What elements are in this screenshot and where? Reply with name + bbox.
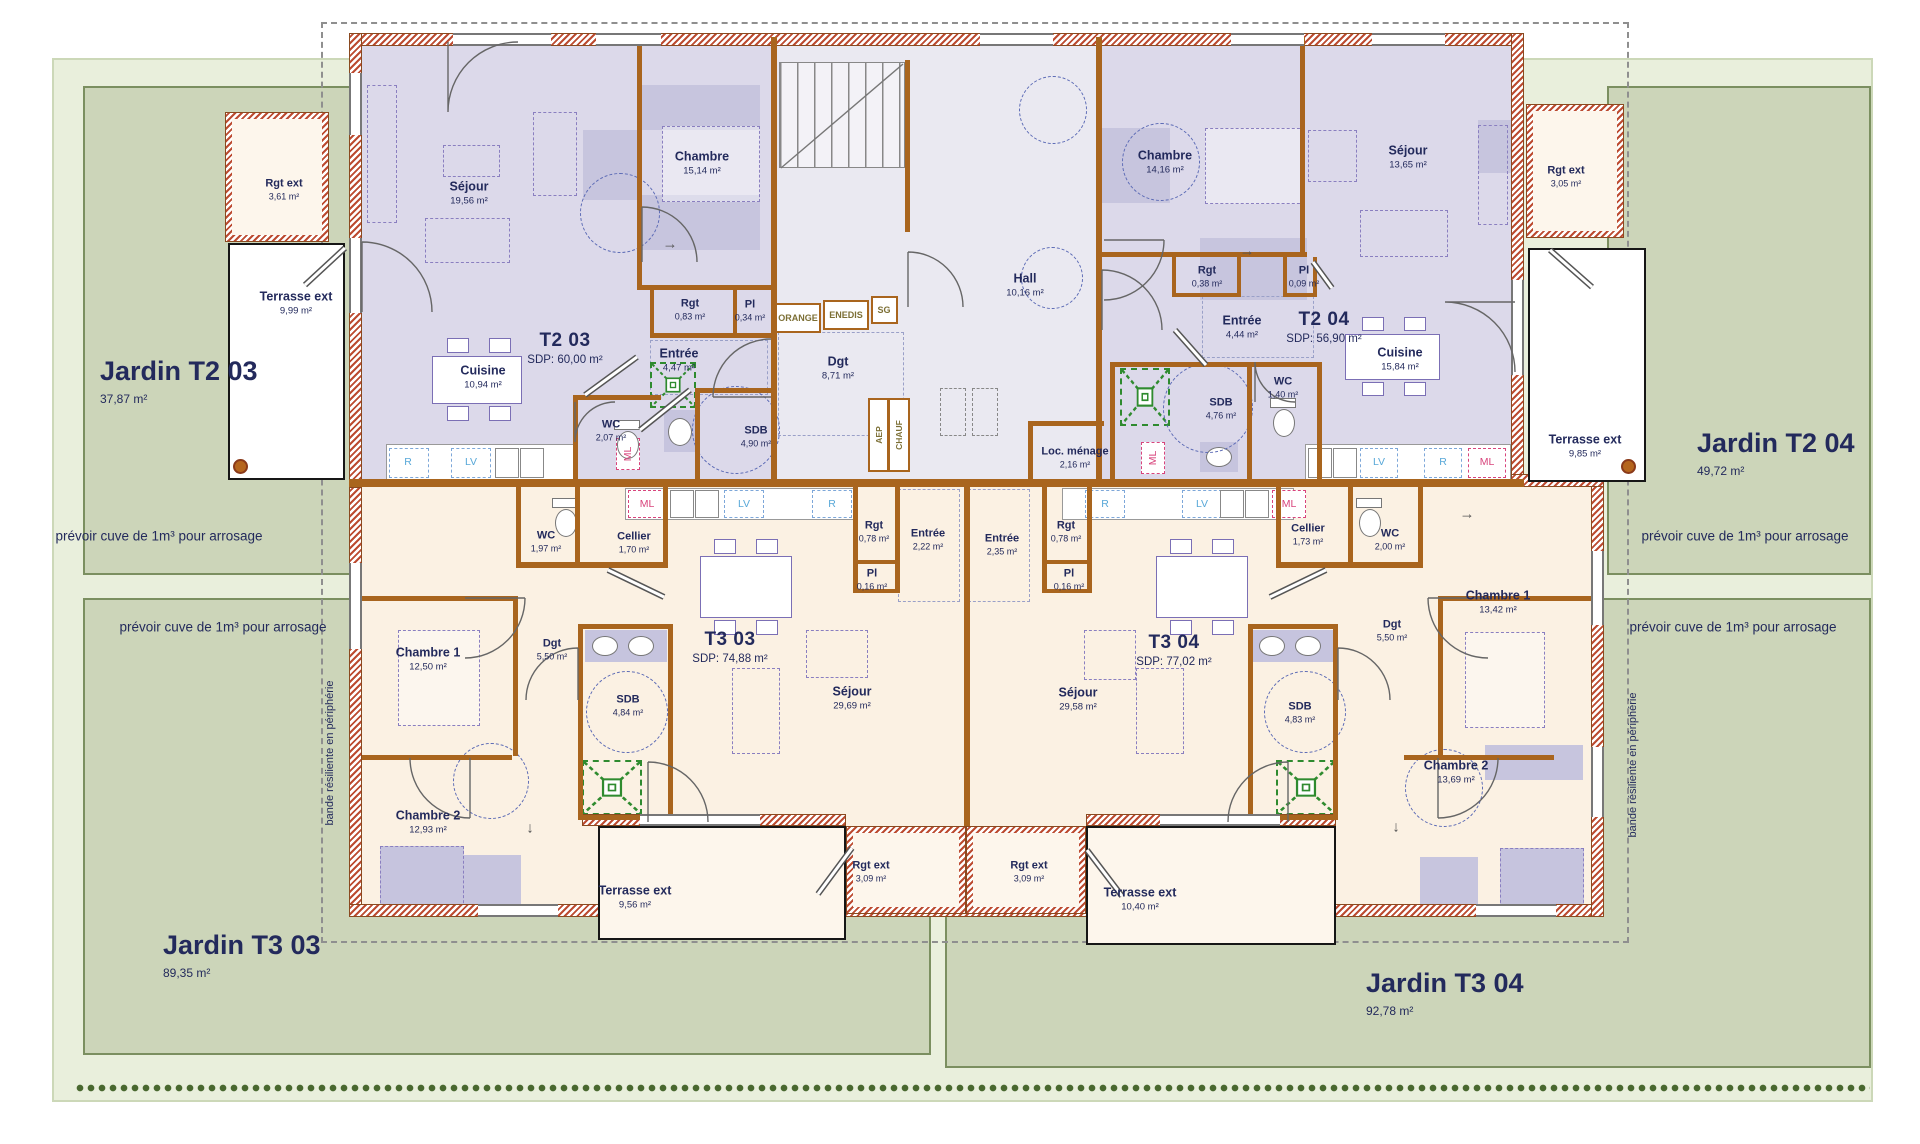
sofa — [1360, 210, 1448, 257]
label-t2-04-entree: Entrée4,44 m² — [1223, 313, 1262, 341]
chair — [1170, 539, 1192, 554]
label-closet-aep: AEP — [874, 426, 884, 443]
wall — [573, 395, 661, 400]
label-t2-04-pl: Pl0,09 m² — [1289, 265, 1320, 290]
label-t3-04-pl: Pl0,16 m² — [1054, 568, 1085, 593]
chair — [1212, 539, 1234, 554]
label-t3-04-cellier: Cellier1,73 m² — [1291, 523, 1325, 548]
label-t3-03-chambre2: Chambre 212,93 m² — [396, 808, 461, 836]
wall — [650, 290, 654, 338]
washbasin-bowl — [668, 418, 692, 446]
window — [349, 73, 362, 135]
window — [1591, 747, 1604, 817]
arrow-right-icon: → — [1460, 506, 1475, 523]
wall — [573, 395, 578, 484]
label-t3-03-sejour: Séjour29,69 m² — [833, 684, 872, 712]
floor-plan: Séjour19,56 m² Chambre15,14 m² Rgt0,83 m… — [0, 0, 1920, 1144]
window — [596, 33, 661, 46]
note-cuve-1: prévoir cuve de 1m³ pour arrosage — [55, 529, 262, 544]
window — [453, 33, 551, 46]
chair — [489, 338, 511, 353]
note-bande-right: bande résiliente en périphérie — [1627, 693, 1639, 838]
label-closet-sg: SG — [877, 305, 890, 315]
bed-t3-03-ch2 — [380, 846, 464, 908]
sofa — [1136, 668, 1184, 754]
label-t2-04-rgt: Rgt0,38 m² — [1192, 265, 1223, 290]
label-garden-t2-04: Jardin T2 0449,72 m² — [1697, 428, 1855, 478]
wall — [362, 596, 518, 601]
label-ml: ML — [1147, 451, 1159, 466]
note-bande-left: bande résiliente en périphérie — [324, 681, 336, 826]
armchair — [533, 112, 577, 196]
wall — [578, 624, 673, 629]
washbasin-bowl — [628, 636, 654, 656]
floor-patch — [640, 85, 760, 130]
label-terrasse-tl: Terrasse ext9,99 m² — [260, 289, 333, 317]
label-t2-03-chambre: Chambre15,14 m² — [675, 149, 729, 177]
shaft-circle — [1019, 76, 1087, 144]
label-ml: ML — [640, 498, 655, 510]
coffee-table — [443, 145, 500, 177]
window — [1372, 33, 1445, 46]
wall — [1087, 487, 1092, 591]
title-t2-03: T2 03SDP: 60,00 m² — [527, 330, 602, 366]
wall — [887, 398, 890, 472]
exterior-wall — [1591, 474, 1604, 917]
arrow-down-icon: ↓ — [1392, 819, 1400, 836]
duct-shaft — [940, 388, 966, 436]
wall — [1110, 362, 1322, 367]
wall — [575, 487, 580, 567]
window — [478, 904, 558, 917]
wall — [1172, 257, 1176, 297]
label-ml: ML — [1480, 456, 1495, 468]
chair — [714, 539, 736, 554]
label-hall: Hall10,16 m² — [1006, 271, 1044, 299]
wall — [1028, 421, 1104, 426]
floor-patch — [463, 855, 521, 910]
label-t2-03-sdb: SDB4,90 m² — [741, 425, 772, 450]
label-t3-04-sdb: SDB4,83 m² — [1285, 701, 1316, 726]
label-t2-04-sdb: SDB4,76 m² — [1206, 397, 1237, 422]
label-garden-t3-03: Jardin T3 0389,35 m² — [163, 930, 321, 980]
sliding-door — [1160, 814, 1280, 826]
wall — [1172, 293, 1241, 297]
washbasin-bowl — [592, 636, 618, 656]
wall — [1276, 487, 1281, 567]
wall — [650, 333, 774, 338]
sink — [1333, 448, 1357, 478]
chair — [489, 406, 511, 421]
sofa — [732, 668, 780, 754]
label-t2-04-wc: WC1,40 m² — [1268, 376, 1299, 401]
label-t2-03-pl: Pl0,34 m² — [735, 299, 766, 324]
wall — [1237, 257, 1241, 297]
garden-t2-04 — [1607, 86, 1871, 575]
label-t3-03-wc: WC1,97 m² — [531, 530, 562, 555]
chair — [1404, 317, 1426, 331]
label-t3-03-pl: Pl0,16 m² — [857, 568, 888, 593]
label-t2-04-chambre: Chambre14,16 m² — [1138, 148, 1192, 176]
label-lv: LV — [1196, 498, 1208, 510]
toilet — [1356, 498, 1382, 508]
note-cuve-4: prévoir cuve de 1m³ pour arrosage — [1629, 620, 1836, 635]
wall — [1418, 487, 1423, 567]
arrow-down-icon: ↓ — [526, 820, 534, 837]
label-ml: ML — [1282, 498, 1297, 510]
sink — [1245, 490, 1269, 518]
label-t2-03-entree: Entrée4,47 m² — [660, 346, 699, 374]
title-t3-04: T3 04SDP: 77,02 m² — [1136, 632, 1211, 668]
dining-table — [1156, 556, 1248, 618]
label-r: R — [1439, 456, 1447, 468]
window — [1231, 33, 1304, 46]
wall — [1248, 624, 1253, 820]
wall — [695, 388, 700, 484]
exterior-wall — [349, 487, 362, 917]
wall — [516, 487, 521, 567]
wall — [637, 37, 642, 290]
wall — [853, 560, 900, 564]
tv-unit — [1478, 125, 1508, 225]
wall — [513, 596, 518, 756]
label-lv: LV — [465, 456, 477, 468]
label-rgt-ext-tl: Rgt ext3,61 m² — [265, 178, 302, 203]
label-t3-03-rgt: Rgt0,78 m² — [859, 520, 890, 545]
label-closet-chauf: CHAUF — [894, 420, 904, 450]
wall — [362, 755, 512, 760]
note-cuve-3: prévoir cuve de 1m³ pour arrosage — [1641, 529, 1848, 544]
arrow-right-icon: → — [663, 236, 678, 253]
label-t2-03-sejour: Séjour19,56 m² — [450, 179, 489, 207]
wall — [637, 285, 774, 290]
label-closet-enedis: ENEDIS — [829, 310, 863, 320]
chair — [1362, 317, 1384, 331]
label-rgt-ext-bl: Rgt ext3,09 m² — [852, 860, 889, 885]
wall — [663, 487, 668, 567]
wall — [1300, 37, 1305, 257]
window — [1476, 904, 1556, 917]
label-t3-04-chambre1: Chambre 113,42 m² — [1466, 588, 1531, 616]
wall — [1283, 257, 1287, 297]
floor-patch — [1420, 857, 1478, 910]
label-terrasse-bl: Terrasse ext9,56 m² — [599, 883, 672, 911]
turning-circle — [580, 173, 660, 253]
wardrobe — [367, 85, 397, 223]
label-t3-03-dgt: Dgt5,50 m² — [537, 638, 568, 663]
label-t3-04-chambre2: Chambre 213,69 m² — [1424, 758, 1489, 786]
wall — [1317, 362, 1322, 484]
label-r: R — [404, 456, 412, 468]
label-common-dgt: Dgt8,71 m² — [822, 354, 854, 382]
label-t2-03-rgt: Rgt0,83 m² — [675, 298, 706, 323]
chair — [756, 539, 778, 554]
arrow-right-icon: → — [1240, 243, 1255, 260]
label-rgt-ext-br: Rgt ext3,09 m² — [1010, 860, 1047, 885]
label-r: R — [828, 498, 836, 510]
label-t2-03-wc: WC2,07 m² — [596, 419, 627, 444]
title-t3-03: T3 03SDP: 74,88 m² — [692, 629, 767, 665]
bed-t2-04 — [1205, 128, 1305, 204]
dining-table — [700, 556, 792, 618]
sink — [495, 448, 519, 478]
wall — [1276, 562, 1423, 568]
staircase — [779, 62, 905, 168]
label-t3-04-sejour: Séjour29,58 m² — [1059, 685, 1098, 713]
title-t2-04: T2 04SDP: 56,90 m² — [1286, 309, 1361, 345]
chair — [1212, 620, 1234, 635]
armchair — [1308, 130, 1357, 182]
wall — [1102, 252, 1307, 257]
shower — [1120, 368, 1170, 426]
wall — [1333, 624, 1338, 820]
rainwater-dot — [233, 459, 248, 474]
hedge-row — [75, 1083, 1870, 1094]
wall — [578, 624, 583, 820]
label-t3-04-rgt: Rgt0,78 m² — [1051, 520, 1082, 545]
label-t3-04-dgt: Dgt5,50 m² — [1377, 619, 1408, 644]
chair — [447, 406, 469, 421]
label-t3-03-entree: Entrée2,22 m² — [911, 528, 945, 553]
duct-shaft — [972, 388, 998, 436]
chair — [1404, 382, 1426, 396]
label-ml: ML — [622, 447, 634, 462]
wall — [1042, 560, 1092, 564]
window — [980, 33, 1053, 46]
shower — [582, 760, 642, 815]
label-lv: LV — [738, 498, 750, 510]
bed-t3-04-ch2 — [1500, 848, 1584, 908]
label-loc-menage: Loc. ménage2,16 m² — [1041, 446, 1108, 471]
label-closet-orange: ORANGE — [778, 313, 818, 323]
wall — [1247, 362, 1252, 484]
label-t2-04-sejour: Séjour13,65 m² — [1389, 143, 1428, 171]
sink — [670, 490, 694, 518]
rainwater-dot — [1621, 459, 1636, 474]
label-t2-03-cuisine: Cuisine10,94 m² — [460, 363, 505, 391]
label-t3-04-wc: WC2,00 m² — [1375, 528, 1406, 553]
exterior-wall — [1511, 33, 1524, 487]
label-r: R — [1101, 498, 1109, 510]
door-opening — [1511, 280, 1524, 375]
wall — [1096, 37, 1102, 484]
wall — [771, 37, 777, 484]
sink — [1220, 490, 1244, 518]
label-t3-03-chambre1: Chambre 112,50 m² — [396, 645, 461, 673]
sliding-door — [640, 814, 760, 826]
bed-t3-04-ch1 — [1465, 632, 1545, 728]
sofa — [425, 218, 510, 263]
wall — [349, 479, 1524, 487]
label-t3-04-entree: Entrée2,35 m² — [985, 533, 1019, 558]
toilet-bowl — [1273, 409, 1295, 437]
armchair — [806, 630, 868, 678]
wall — [1283, 293, 1317, 297]
label-rgt-ext-tr: Rgt ext3,05 m² — [1547, 165, 1584, 190]
note-cuve-2: prévoir cuve de 1m³ pour arrosage — [119, 620, 326, 635]
wall — [1028, 421, 1033, 487]
wall — [695, 388, 774, 393]
wall — [1438, 596, 1443, 756]
sink — [695, 490, 719, 518]
label-garden-t2-03: Jardin T2 0337,87 m² — [100, 356, 258, 406]
wall — [895, 487, 900, 591]
wall — [1248, 624, 1338, 629]
wall — [1348, 487, 1353, 567]
label-t3-03-cellier: Cellier1,70 m² — [617, 531, 651, 556]
shower — [1276, 760, 1336, 815]
washbasin-bowl — [1259, 636, 1285, 656]
window — [1591, 551, 1604, 625]
washbasin-bowl — [1295, 636, 1321, 656]
wall — [516, 562, 668, 568]
chair — [447, 338, 469, 353]
sink — [520, 448, 544, 478]
wall — [1110, 362, 1115, 484]
label-lv: LV — [1373, 456, 1385, 468]
label-terrasse-br: Terrasse ext10,40 m² — [1104, 885, 1177, 913]
label-terrasse-tr: Terrasse ext9,85 m² — [1549, 432, 1622, 460]
wall — [1042, 487, 1047, 591]
chair — [1362, 382, 1384, 396]
floor-patch — [1485, 745, 1583, 780]
wall — [668, 624, 673, 820]
armchair — [1084, 630, 1136, 680]
label-t3-03-sdb: SDB4,84 m² — [613, 694, 644, 719]
label-garden-t3-04: Jardin T3 0492,78 m² — [1366, 968, 1524, 1018]
door-opening — [349, 238, 362, 313]
label-t2-04-cuisine: Cuisine15,84 m² — [1377, 345, 1422, 373]
window — [349, 563, 362, 649]
wall — [905, 60, 910, 232]
